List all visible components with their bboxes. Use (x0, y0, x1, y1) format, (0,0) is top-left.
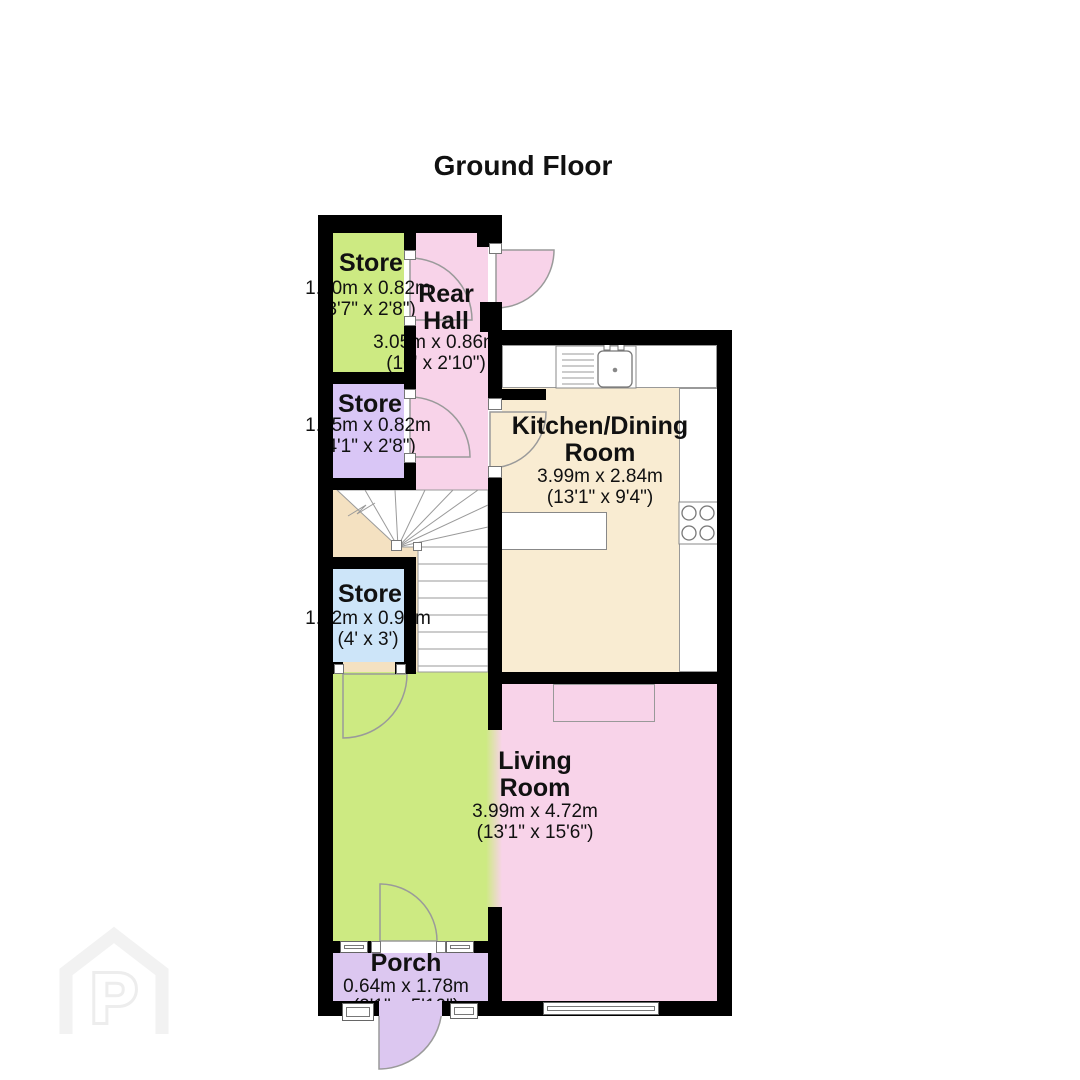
door-jamb (488, 466, 502, 478)
stair-newel (391, 540, 402, 551)
porch-name: Porch (371, 950, 442, 976)
wall (318, 215, 502, 233)
wall (404, 557, 416, 674)
door-arc-rear-entrance (496, 250, 554, 308)
rear-hall-name1: Rear (418, 281, 474, 307)
kitchen-metric: 3.99m x 2.84m (537, 467, 663, 487)
wall (488, 471, 502, 672)
store-mid-name: Store (338, 391, 402, 417)
living-fireplace (553, 684, 655, 722)
watermark-letter: P (91, 959, 138, 1037)
wall (318, 215, 333, 1016)
living-name1: Living (498, 748, 572, 774)
living-imperial: (13'1" x 15'6") (477, 823, 594, 843)
front-door-opening (379, 1001, 442, 1016)
door-jamb (371, 941, 381, 953)
living-room-window (543, 1002, 659, 1015)
stair-newel (413, 542, 422, 551)
porch-metric: 0.64m x 1.78m (343, 977, 469, 997)
watermark-logo: P (48, 922, 178, 1037)
door-jamb (404, 250, 416, 260)
rear-hall-imperial: (10' x 2'10") (386, 354, 486, 374)
store-stairs-imperial: (4' x 3') (337, 630, 398, 650)
door-jamb (436, 941, 446, 953)
door-jamb (404, 389, 416, 399)
wall (488, 907, 502, 1016)
porch-window (342, 1003, 374, 1021)
living-metric: 3.99m x 4.72m (472, 802, 598, 822)
wall (488, 330, 732, 345)
rear-hall-name2: Hall (423, 308, 469, 334)
wall (488, 672, 732, 684)
hall-window (340, 941, 368, 953)
page-title: Ground Floor (434, 150, 613, 182)
hall-window (446, 941, 474, 953)
store-stairs-name: Store (338, 581, 402, 607)
door-jamb (334, 664, 344, 674)
door-jamb (489, 243, 502, 254)
door-jamb (404, 316, 416, 326)
kitchen-counter-top (502, 345, 717, 388)
wall (488, 684, 502, 730)
wall (404, 316, 416, 397)
kitchen-name1: Kitchen/Dining (512, 413, 688, 439)
room-hallway (333, 672, 488, 941)
store-top-imperial: (3'7" x 2'8") (320, 300, 416, 320)
store-mid-imperial: (4'1" x 2'8") (320, 437, 416, 457)
rear-hall-metric: 3.05m x 0.86m (373, 333, 499, 353)
kitchen-imperial: (13'1" x 9'4") (547, 488, 653, 508)
wall (480, 302, 502, 332)
door-jamb (488, 398, 502, 410)
kitchen-island-unit (490, 512, 607, 550)
porch-window (450, 1003, 478, 1019)
wall (333, 372, 416, 384)
wall (333, 478, 416, 490)
door-jamb (396, 664, 406, 674)
living-name2: Room (500, 775, 571, 801)
door-jamb (404, 453, 416, 463)
kitchen-name2: Room (565, 440, 636, 466)
store-top-name: Store (339, 250, 403, 276)
floorplan-canvas: P Ground Floor (0, 0, 1080, 1080)
